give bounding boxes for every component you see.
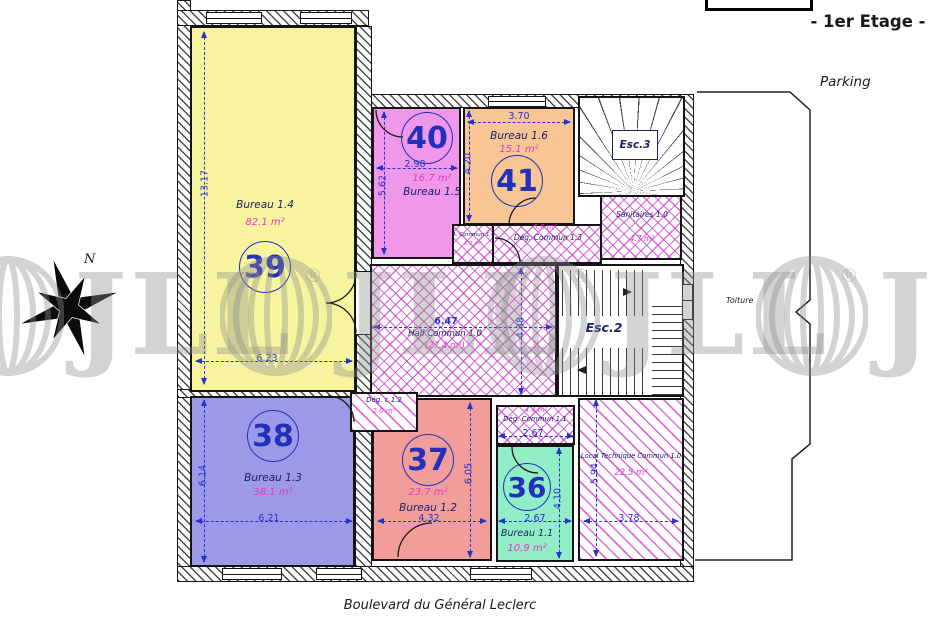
hall-area: (27.4 m²) bbox=[401, 341, 489, 351]
floorplan-canvas: Esc.3 Esc.2 39 40 41 38 37 36 Bureau 1.4… bbox=[0, 0, 934, 622]
esc3-label: Esc.3 bbox=[620, 139, 651, 151]
window bbox=[222, 568, 282, 580]
registered-mark-icon: ® bbox=[840, 265, 859, 287]
stairwell-esc3: Esc.3 bbox=[578, 96, 685, 197]
room-38-area: 38.1 m² bbox=[213, 487, 333, 498]
room-41-name: Bureau 1.6 bbox=[467, 130, 571, 142]
room-38-number: 38 bbox=[247, 410, 299, 462]
window bbox=[316, 568, 362, 580]
room-40-number: 40 bbox=[401, 112, 453, 164]
esc2-label: Esc.2 bbox=[581, 320, 627, 335]
compass-rose-icon bbox=[14, 248, 126, 366]
dim-39-height: 13.17 bbox=[200, 167, 211, 201]
sanitaires-area: 4.7 m² bbox=[618, 234, 666, 243]
parking-label: Parking bbox=[820, 74, 871, 90]
room-36-name: Bureau 1.1 bbox=[486, 528, 568, 539]
stairwell-esc2: Esc.2 bbox=[557, 264, 684, 397]
room-37-area: 23.7 m² bbox=[378, 487, 478, 498]
deg11-name: Dég. Commun 1.1 bbox=[492, 415, 578, 423]
jll-watermark: JLL ® bbox=[756, 256, 934, 376]
room-38-name: Bureau 1.3 bbox=[213, 472, 333, 484]
floor-title: - 1er Etage - bbox=[806, 12, 930, 31]
room-39-area: 82.1 m² bbox=[200, 217, 330, 228]
dim-39-width: 6.23 bbox=[250, 353, 284, 364]
dim-37-width: 4.32 bbox=[412, 513, 446, 524]
toiture-label: Toiture bbox=[726, 296, 753, 305]
dim-local-height: 5.94 bbox=[590, 459, 601, 489]
dim-41-height: 4.20 bbox=[463, 149, 474, 179]
hall-dim-width: 6.47 bbox=[428, 316, 464, 327]
degc12-area: 2.0 m² bbox=[356, 407, 412, 415]
window bbox=[206, 12, 262, 24]
asc-area: 1.7 m² bbox=[455, 241, 491, 247]
room-41-number: 41 bbox=[491, 155, 543, 207]
esc2-flight-top bbox=[562, 270, 648, 316]
room-39-name: Bureau 1.4 bbox=[200, 199, 330, 211]
room-36-number: 36 bbox=[503, 463, 551, 511]
esc2-flight-right bbox=[652, 302, 682, 395]
esc2-flight-bottom bbox=[562, 348, 648, 395]
window bbox=[682, 284, 693, 320]
dim-36-height: 4.10 bbox=[553, 484, 564, 514]
asc-name: A. Commun 1.0 bbox=[452, 232, 494, 238]
dim-41-width: 3.70 bbox=[502, 111, 536, 122]
room-39-number: 39 bbox=[239, 241, 291, 293]
deg11-area: 4.4 m² bbox=[506, 406, 566, 414]
local-technique-area: 22.5 m² bbox=[598, 468, 664, 478]
street-label: Boulevard du Général Leclerc bbox=[290, 598, 590, 613]
jll-globe-icon bbox=[756, 256, 868, 376]
jll-watermark-text: JLL bbox=[878, 260, 934, 372]
wall-38-37-divider bbox=[355, 430, 372, 567]
dim-hall-height: 4.38 bbox=[516, 313, 527, 343]
dim-37-height: 6.05 bbox=[464, 459, 475, 489]
title-block-stub bbox=[705, 0, 813, 11]
deg13-area: 5.6 m² bbox=[512, 223, 578, 231]
window bbox=[470, 568, 532, 580]
dim-local-width: 3.78 bbox=[612, 513, 646, 524]
esc2-arrow-down-icon bbox=[577, 366, 586, 374]
degc12-name: Dég. c 1.2 bbox=[352, 396, 416, 404]
dim-38-height: 6.14 bbox=[198, 461, 209, 491]
hall-name: Hall Commun 1.0 bbox=[397, 329, 493, 339]
wall-left bbox=[177, 10, 191, 582]
dim-40-height: 5.62 bbox=[378, 171, 389, 201]
deg13-name: Dég. Commun 1.3 bbox=[498, 233, 598, 242]
sanitaires-name: Sanitaires 1.0 bbox=[602, 210, 682, 219]
dim-deg11-width: 2.67 bbox=[516, 428, 550, 439]
dim-36-width: 2.67 bbox=[518, 513, 552, 524]
room-41-area: 15.1 m² bbox=[467, 144, 571, 155]
north-label: N bbox=[84, 252, 95, 267]
area-sanitaires bbox=[600, 195, 682, 260]
dim-line bbox=[204, 32, 205, 384]
esc2-arrow-up-icon bbox=[623, 288, 632, 296]
esc3-label-box: Esc.3 bbox=[612, 130, 658, 160]
wall-39-right-upper bbox=[356, 26, 372, 272]
window bbox=[488, 96, 546, 107]
room-37-number: 37 bbox=[402, 434, 454, 486]
dim-38-width: 6.21 bbox=[252, 513, 286, 524]
dim-40-width: 2.98 bbox=[398, 159, 432, 170]
room-40-name: Bureau 1.5 bbox=[382, 186, 482, 198]
parking-boundary-line bbox=[695, 92, 810, 560]
dim-line bbox=[468, 122, 570, 123]
window bbox=[300, 12, 352, 24]
